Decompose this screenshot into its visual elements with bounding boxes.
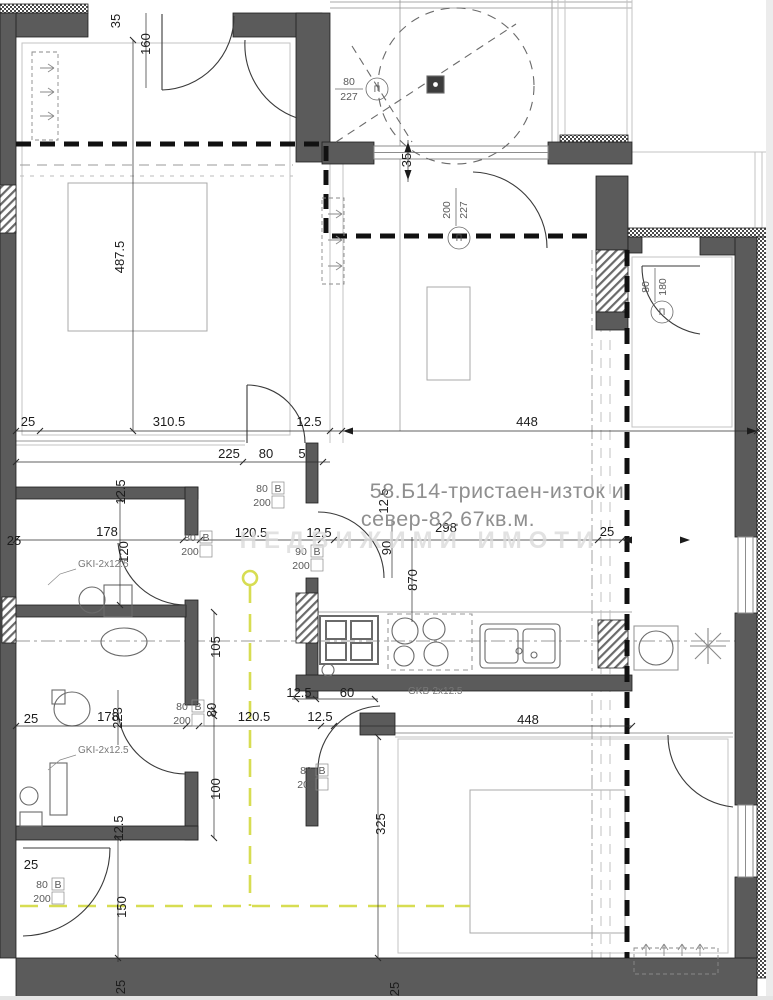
marker-glyph: П (456, 233, 462, 243)
tag-top: 80 (343, 76, 355, 88)
watermark-text: НЕДВИЖИМИ ИМОТИ (240, 527, 601, 554)
tag-top: 200 (441, 201, 453, 219)
stove-burner1-icon (392, 618, 418, 644)
furniture-and-insets (16, 0, 773, 953)
dim-label: 5 (298, 446, 305, 461)
dim-label: 325 (373, 813, 388, 835)
bath-circle-icon (378, 8, 534, 164)
dim-label: 80 (259, 446, 273, 461)
door-arc-topleft2 (245, 40, 297, 118)
dim-label: 160 (138, 33, 153, 55)
door-tag-box2 (272, 496, 284, 508)
dim-label: 25 (387, 982, 402, 996)
wall-corridor-left2 (185, 600, 198, 705)
dim-label: 310.5 (153, 414, 186, 429)
door-tag-code: В (194, 701, 201, 713)
dim-label: 25 (24, 857, 38, 872)
toilet2-icon (54, 692, 90, 726)
bedroom1-inset (22, 43, 290, 435)
wall-hatch-topleft (0, 4, 88, 13)
dim-label: 25 (7, 533, 21, 548)
door-tag-code: В (202, 532, 209, 544)
dim-label: 35 (399, 153, 414, 167)
dim-label: 12.5 (111, 815, 126, 840)
bath2-cabinet (20, 812, 42, 826)
bed2-outline (470, 790, 625, 933)
wall-bath2-bottom (16, 826, 198, 840)
door-tag: 80 В 200 (33, 878, 64, 905)
kitchen-module-b (351, 621, 372, 639)
drain-dot (433, 82, 438, 87)
wall-terrace-left (322, 142, 374, 164)
wall-hatch-entry2 (596, 250, 628, 312)
floor-plan-svg: 35 160 487.5 35 25 310.5 12.5 448 225 80… (0, 0, 773, 1000)
door-tag-width: 80 (300, 765, 312, 777)
marker-glyph: П (659, 307, 665, 317)
image-edge-right (766, 0, 773, 1000)
living-furniture (427, 287, 470, 380)
boiler-star-icon (690, 628, 726, 664)
dim-label: 225 (218, 446, 240, 461)
wall-hatch-right-outer (757, 237, 767, 978)
dim-label: 120.5 (238, 709, 271, 724)
dim-label: 35 (108, 14, 123, 28)
dim-label: 25 (24, 711, 38, 726)
stove-burner3-icon (423, 618, 445, 640)
route-marker-circle (243, 571, 257, 585)
wall-hatch-entry (560, 135, 628, 142)
dim-label: 60 (340, 685, 354, 700)
wall-entry-vertical2 (596, 312, 628, 330)
bath2-sink-icon (20, 787, 38, 805)
door-tag-code: В (318, 765, 325, 777)
dim-label: 80 (204, 703, 219, 717)
wall-corridor-right1 (306, 443, 318, 503)
plan-title-line1: 58.Б14-тристаен-изток и (370, 479, 625, 503)
door-tag-width: 80 (184, 532, 196, 544)
tag-bottom: 227 (458, 201, 470, 219)
sink-kitchen-tap2 (531, 652, 537, 658)
kitchen-module-c (326, 643, 346, 660)
kitchen-module-a (326, 621, 346, 639)
door-tag-height: 200 (173, 715, 191, 727)
bath-diagonal1 (336, 24, 516, 142)
wall-terrace-right (548, 142, 632, 164)
radiator1-arrows (40, 64, 54, 120)
shaft-hatch-kitchen-left (296, 593, 318, 643)
stove-outline (388, 614, 472, 670)
sink-kitchen-outline (480, 624, 560, 668)
door-tag-height: 200 (33, 893, 51, 905)
door-tag-box2 (52, 892, 64, 904)
dim-label: 100 (208, 778, 223, 800)
dim-label: 448 (516, 414, 538, 429)
dim-label: 25 (113, 980, 128, 994)
bath2-column (50, 763, 67, 815)
wall-bedroom2-stub (360, 713, 395, 735)
dim-label: 105 (208, 636, 223, 658)
door-tag: 80 В 200 (253, 482, 284, 509)
wall-left-outer (0, 13, 16, 958)
door-arc-entry (642, 266, 700, 334)
sink-kitchen-basin2 (523, 629, 555, 663)
door-tag-width: 80 (36, 879, 48, 891)
door-tag-code: В (54, 879, 61, 891)
wall-bath-divider (16, 605, 186, 617)
door-tag-height: 200 (181, 546, 199, 558)
door-tag-height: 200 (297, 779, 315, 791)
fixtures-layer (20, 8, 726, 826)
title-block: НЕДВИЖИМИ ИМОТИ 58.Б14-тристаен-изток и … (240, 479, 625, 554)
radiator3-arrows (642, 944, 704, 956)
dim-label: 487.5 (112, 241, 127, 274)
sink-kitchen-basin1 (485, 629, 518, 663)
dim-label: 12.5 (296, 414, 321, 429)
door-tag-width: 80 (176, 701, 188, 713)
wall-hatch-left2 (2, 597, 16, 643)
material-label: GKI-2x12.5 (78, 559, 129, 570)
door-tag-box2 (200, 545, 212, 557)
door-tag-box2 (192, 714, 204, 726)
marker-glyph: П (374, 84, 380, 94)
plan-title-line2: север-82.67кв.м. (361, 507, 535, 531)
washer-outline (634, 626, 678, 670)
door-tag-box2 (311, 559, 323, 571)
dim-label: 12.5 (286, 685, 311, 700)
door-arc-bedroom2 (668, 735, 733, 807)
wall-hatch-left1 (0, 185, 16, 233)
washer-drum-icon (639, 631, 673, 665)
wall-entry-vertical (596, 176, 628, 250)
dim-label: 178 (96, 524, 118, 539)
wall-bath1-top (16, 487, 198, 499)
dim-label: 12.5 (113, 479, 128, 504)
wall-right-outer1 (735, 237, 757, 537)
door-tag-height: 200 (292, 560, 310, 572)
floor-plan-canvas: 35 160 487.5 35 25 310.5 12.5 448 225 80… (0, 0, 773, 1000)
toilet1-icon (101, 628, 147, 656)
dim-label: 223 (110, 707, 125, 729)
kitchen-knob (322, 664, 334, 676)
bath-diagonal2 (352, 46, 412, 142)
wall-rightroom-jamb1 (628, 237, 642, 253)
stove-burner2-icon (394, 646, 414, 666)
door-tag-height: 200 (253, 497, 271, 509)
material-label: GKI-2x12.5 (78, 745, 129, 756)
tag-bottom: 227 (340, 91, 358, 103)
material-labels: GKI-2x12.5 GKI-2x12.5 GKB-2x12.5 (48, 559, 463, 770)
dim-label: 448 (517, 712, 539, 727)
dim-label: 12.5 (307, 709, 332, 724)
shaft-hatch-kitchen-right (598, 620, 628, 668)
stove-burner4-icon (424, 642, 448, 666)
bed1-outline (68, 183, 207, 331)
dim-label: 25 (600, 524, 614, 539)
wall-hatch-rightroom (628, 228, 767, 237)
dim-label: 25 (21, 414, 35, 429)
radiator1-icon (32, 52, 58, 140)
door-tag-width: 80 (256, 483, 268, 495)
image-edge-bottom (0, 996, 773, 1000)
wall-corridor-left1 (185, 487, 198, 535)
kitchen-module-d (351, 643, 372, 660)
bedroom2-inset (398, 739, 728, 953)
dim-label: 870 (405, 569, 420, 591)
tag-top: 80 (640, 281, 652, 293)
wall-right-outer2 (735, 613, 757, 805)
material-leader1 (48, 569, 76, 585)
axis-lines (16, 165, 745, 990)
door-arc-topleft1 (162, 16, 234, 90)
sink-kitchen-tap1 (516, 648, 522, 654)
tag-bottom: 180 (657, 278, 669, 296)
dim-label: 150 (114, 896, 129, 918)
material-label: GKB-2x12.5 (408, 686, 463, 697)
wall-bath-top-vertical (296, 13, 330, 162)
door-tag-code: В (274, 483, 281, 495)
